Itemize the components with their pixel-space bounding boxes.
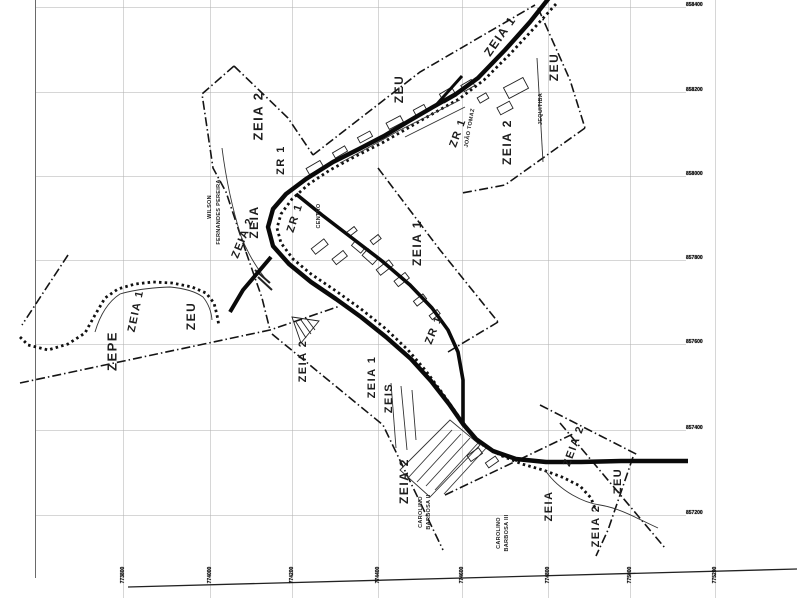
grid-coordinate-label: 857200 [686,510,703,516]
zone-label: ZEIA 2 [251,92,266,141]
grid-coordinate-label: 858000 [686,171,703,177]
zone-label: ZEPE [105,331,120,371]
street-label: FERNANDES PEREIRA [216,179,222,244]
zone-label: ZEIA 2 [397,458,411,504]
zone-label: ZEIA 2 [500,119,514,165]
grid-coordinate-label: 858400 [686,2,703,8]
grid-coordinate-label: 857400 [686,425,703,431]
grid-coordinate-label: 775200 [712,567,718,584]
grid-coordinate-label: 857600 [686,339,703,345]
zone-label: ZEU [184,302,198,331]
street-label: CAROLINO [496,517,502,549]
zone-label: ZEIA [247,205,261,238]
zone-boundary-lines [20,5,665,556]
grid-coordinate-label: 774400 [375,567,381,584]
scanned-zoning-map: ZEIA 2ZR 1ZEIA 2ZEIAZR 1ZEUZEIA 1ZEUZEIA… [0,0,800,609]
grid-coordinate-label: 774800 [545,567,551,584]
grid-coordinate-label: 774200 [289,567,295,584]
zone-label: ZR 1 [275,145,287,175]
railway-dotted-lines [20,4,596,511]
building-blocks [306,78,528,468]
street-label: BARBOSA III [504,514,510,551]
zone-label: ZEU [392,75,406,104]
zone-label: ZEU [612,468,624,495]
zone-label: ZEIA 2 [297,340,309,383]
grid-coordinate-label: 775000 [627,567,633,584]
zone-label: ZEIS [383,383,395,413]
main-road-lines [230,0,688,462]
zone-label: ZEIA 1 [410,220,424,266]
street-label: CAROLINO [418,496,424,528]
street-label: BARBOSA II [426,494,432,529]
grid-coordinate-label: 858200 [686,87,703,93]
street-label: CENTRO [316,203,322,228]
grid-coordinate-label: 773800 [120,567,126,584]
street-label: WILSON [207,195,213,219]
grid-coordinate-label: 857800 [686,255,703,261]
street-label: JEQUITIBA [538,93,544,125]
zone-label: ZEU [547,53,561,82]
zone-label: ZEIA [543,490,555,521]
grid-coordinate-label: 774600 [459,567,465,584]
grid-coordinate-label: 774000 [207,567,213,584]
zone-label: ZEIA 1 [366,356,378,399]
zone-label: ZEIA 2 [590,505,602,548]
